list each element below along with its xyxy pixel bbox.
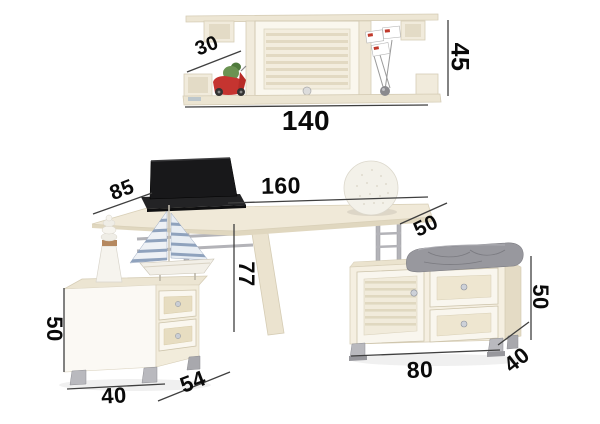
laptop	[141, 158, 246, 212]
dim-label-desk-height: 77	[235, 261, 257, 286]
dim-label-nightstand-width: 40	[101, 384, 128, 407]
bench-right-side	[505, 259, 521, 340]
ball-lamp	[344, 161, 398, 216]
bench-cabinet	[349, 243, 523, 366]
dim-label-shelf-width: 140	[282, 107, 330, 135]
dim-label-bench-width: 80	[406, 358, 433, 382]
bench-louver-panel	[364, 276, 417, 335]
scooter-handlebar	[241, 66, 246, 71]
bench-drawer-2-knob	[461, 321, 467, 327]
ball-lamp-sphere	[344, 161, 398, 215]
card-stand-wire	[374, 56, 384, 90]
scooter-rear-hub	[218, 91, 221, 94]
toy-scooter-decor	[213, 63, 246, 97]
shelf-door-knob	[303, 87, 311, 95]
furniture-dimension-diagram: 30 140 45 85 160 50 77 50 40 54 80 40 50	[0, 0, 600, 424]
shelf-bottom-board	[183, 94, 441, 105]
shelf-louver-panel	[264, 29, 350, 89]
wall-shelf-unit	[183, 14, 441, 105]
dim-label-nightstand-height: 50	[43, 316, 65, 341]
card-stand-base	[380, 86, 390, 96]
dim-label-bench-height: 50	[529, 284, 551, 309]
nightstand-side-panel	[64, 285, 156, 372]
shelf-right-upper-cube-inset	[405, 24, 421, 37]
nightstand-drawer-2-knob	[175, 333, 180, 338]
nightstand-drawer-1-knob	[175, 301, 180, 306]
dim-line-desk-length	[228, 197, 428, 203]
shelf-left-divider	[246, 21, 255, 98]
laptop-screen	[150, 158, 237, 199]
bench-drawer-1-knob	[461, 284, 467, 290]
shelf-left-lower-cube-inset	[188, 77, 208, 93]
shelf-brand-label	[188, 97, 201, 101]
bench-door-knob	[411, 290, 417, 296]
dim-label-desk-length: 160	[261, 174, 301, 198]
dim-label-shelf-height: 45	[447, 43, 472, 72]
card-stand-base-highlight	[382, 88, 385, 91]
scooter-front-hub	[240, 91, 243, 94]
